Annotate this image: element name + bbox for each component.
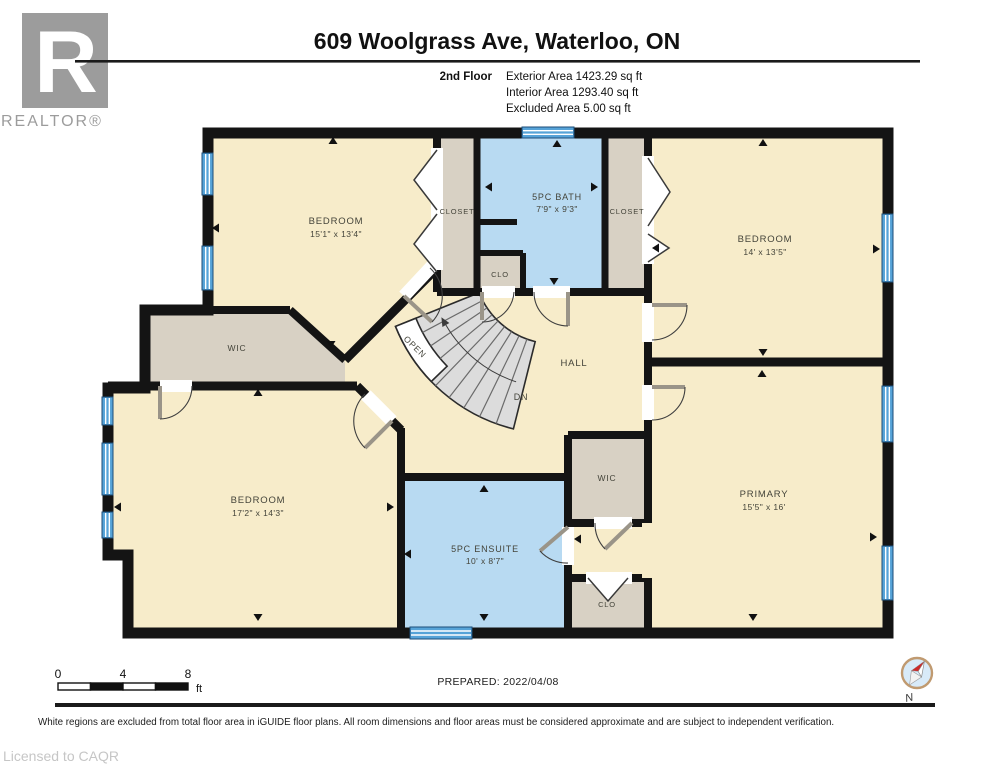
window-icon (882, 546, 893, 600)
label-primary: PRIMARY (740, 489, 789, 500)
dims-bedroom-tl: 15'1" x 13'4" (310, 229, 362, 239)
label-clo-bath: CLO (491, 270, 509, 279)
dims-primary: 15'5" x 16' (742, 502, 785, 512)
door-gap (482, 286, 515, 298)
realtor-logo: R REALTOR® (1, 12, 108, 130)
dims-bath: 7'9" x 9'3" (536, 204, 578, 214)
label-bedroom-bl: BEDROOM (231, 495, 286, 506)
door-gap (160, 380, 192, 392)
floor-plan-canvas: R REALTOR® 609 Woolgrass Ave, Waterloo, … (0, 0, 994, 768)
window-icon (882, 214, 893, 282)
title-divider (75, 60, 920, 63)
window-icon (102, 443, 113, 495)
label-wic-left: WIC (228, 343, 247, 353)
floor-label: 2nd Floor (440, 71, 493, 83)
window-icon (410, 627, 472, 639)
label-ensuite: 5PC ENSUITE (451, 544, 519, 554)
scale-segment (91, 683, 124, 690)
label-wic-right: WIC (598, 473, 617, 483)
label-bedroom-tl: BEDROOM (309, 216, 364, 227)
label-hall: HALL (561, 358, 588, 369)
license-text: Licensed to CAQR (3, 748, 119, 764)
door-gap (642, 385, 654, 420)
scale-segment (58, 683, 91, 690)
label-stairs-dn: DN (514, 392, 529, 402)
compass-icon: N (902, 658, 932, 705)
door-gap (533, 286, 570, 298)
scale-unit: ft (196, 683, 202, 695)
floor-plan-page: R REALTOR® 609 Woolgrass Ave, Waterloo, … (0, 0, 994, 768)
label-clo-bottom: CLO (598, 600, 616, 609)
disclaimer-text: White regions are excluded from total fl… (38, 717, 834, 728)
window-icon (882, 386, 893, 442)
excluded-area: Excluded Area 5.00 sq ft (506, 103, 631, 115)
passage-opening (642, 523, 654, 578)
label-bath: 5PC BATH (532, 192, 582, 202)
label-closet-right: CLOSET (610, 207, 645, 216)
scale-tick-4: 4 (120, 667, 127, 681)
window-icon (522, 127, 574, 138)
label-closet-left: CLOSET (440, 207, 475, 216)
dims-bedroom-tr: 14' x 13'5" (743, 247, 786, 257)
scale-segment (156, 683, 189, 690)
window-icon (102, 512, 113, 538)
window-icon (102, 397, 113, 425)
door-gap (642, 303, 654, 342)
interior-area: Interior Area 1293.40 sq ft (506, 87, 639, 99)
dims-ensuite: 10' x 8'7" (466, 556, 504, 566)
scale-tick-8: 8 (185, 667, 192, 681)
label-bedroom-tr: BEDROOM (738, 234, 793, 245)
scale-tick-0: 0 (55, 667, 62, 681)
compass-circle (902, 658, 932, 688)
page-title: 609 Woolgrass Ave, Waterloo, ON (314, 28, 680, 54)
dims-bedroom-bl: 17'2" x 14'3" (232, 508, 284, 518)
exterior-area: Exterior Area 1423.29 sq ft (506, 71, 643, 83)
window-icon (202, 153, 213, 195)
footer-divider (55, 703, 935, 707)
realtor-logo-text: REALTOR® (1, 113, 103, 130)
prepared-date: PREPARED: 2022/04/08 (437, 676, 558, 688)
window-icon (202, 246, 213, 290)
north-label: N (904, 692, 914, 705)
scale-bar: 0 4 8 ft (55, 667, 202, 695)
scale-segment (123, 683, 156, 690)
